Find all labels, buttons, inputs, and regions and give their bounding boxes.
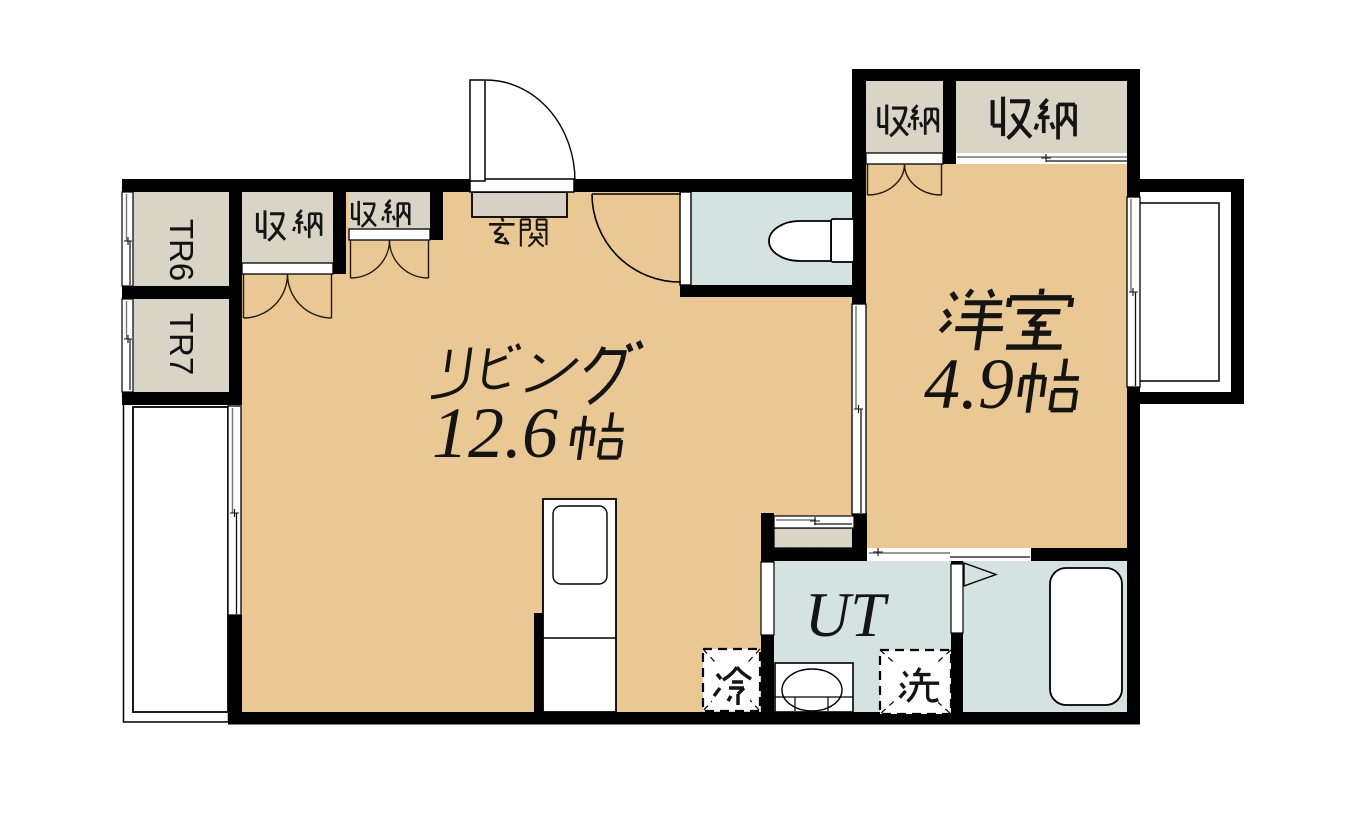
svg-text:TR7: TR7 [163, 313, 200, 375]
svg-text:UT: UT [805, 580, 889, 650]
svg-text:12.6: 12.6 [432, 393, 558, 473]
svg-text:4.9: 4.9 [924, 344, 1014, 424]
svg-text:TR6: TR6 [163, 219, 200, 281]
